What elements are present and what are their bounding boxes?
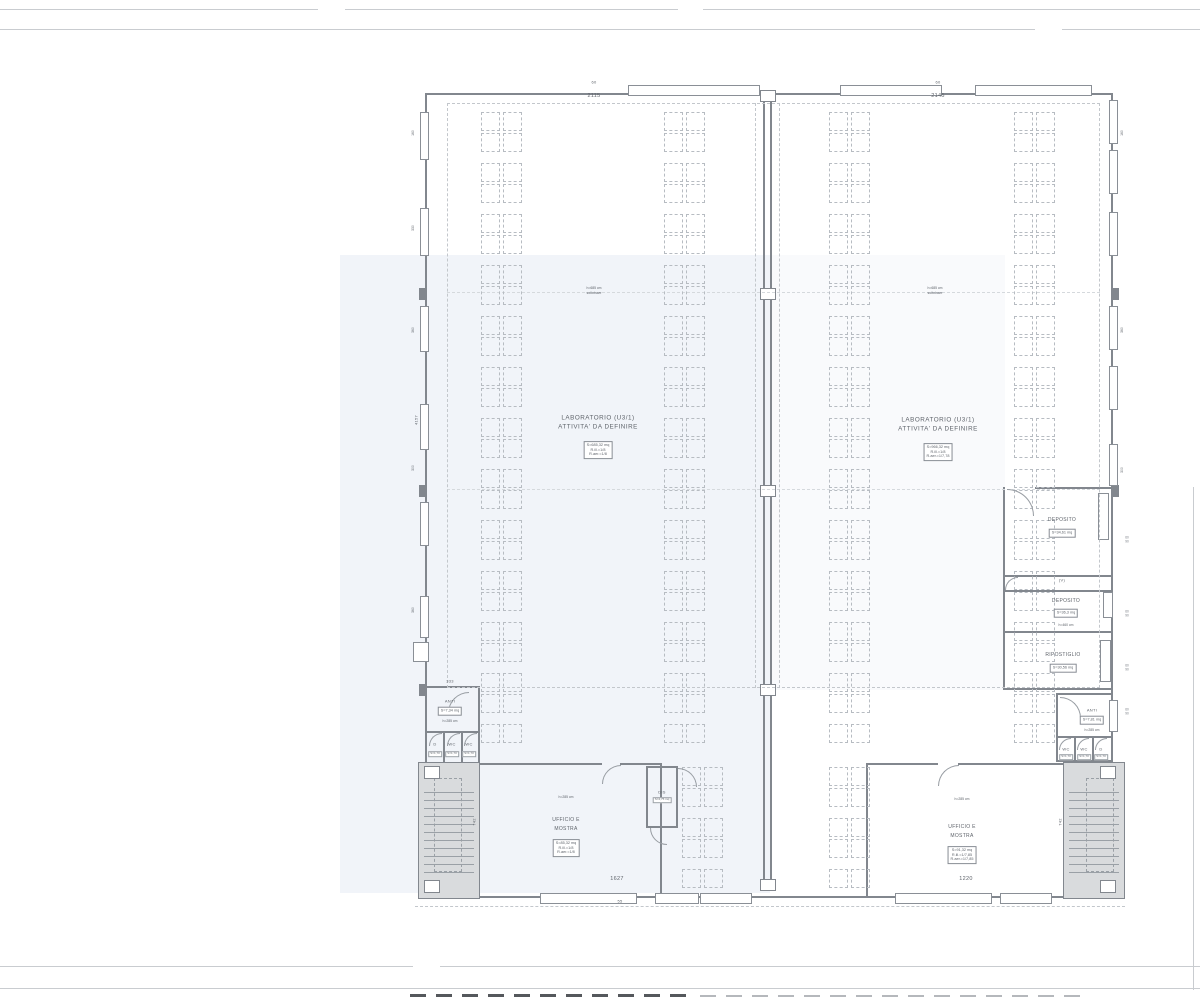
equipment-footprint <box>481 337 500 356</box>
wall <box>419 684 425 696</box>
room-info-ripostiglio: S=30,56 mq <box>1050 664 1077 673</box>
equipment-footprint <box>851 418 870 437</box>
equipment-footprint <box>851 592 870 611</box>
equipment-footprint <box>1036 112 1055 131</box>
cell-area: S=1,70 <box>1077 754 1091 760</box>
equipment-footprint <box>1014 622 1033 641</box>
equipment-footprint <box>1036 694 1055 713</box>
equipment-footprint <box>664 163 683 182</box>
room-info-lab-right: S=966,32 mq R.ill.=1/8 R.aer.=1/7,78 <box>924 443 953 461</box>
equipment-footprint <box>664 571 683 590</box>
equipment-footprint <box>664 133 683 152</box>
window <box>840 85 942 96</box>
equipment-footprint <box>481 469 500 488</box>
equipment-footprint <box>481 571 500 590</box>
equipment-footprint <box>1014 694 1033 713</box>
dim-window-height: 90 <box>1125 614 1129 618</box>
equipment-footprint <box>1036 418 1055 437</box>
door-arc <box>1060 697 1081 718</box>
equipment-footprint <box>682 839 701 858</box>
equipment-footprint <box>503 592 522 611</box>
room-info-deposito-1: S=34,61 mq <box>1049 529 1076 538</box>
equipment-footprint <box>503 724 522 743</box>
dim-anti-left-width: 333 <box>446 679 454 684</box>
window <box>1109 100 1118 144</box>
wall <box>478 688 480 765</box>
dashed-line <box>447 292 1100 293</box>
sheet-border-line <box>345 9 678 10</box>
equipment-footprint <box>503 367 522 386</box>
equipment-footprint <box>851 214 870 233</box>
equipment-footprint <box>1036 214 1055 233</box>
stair-tread <box>1069 872 1119 873</box>
equipment-footprint <box>503 694 522 713</box>
equipment-footprint <box>704 869 723 888</box>
equipment-footprint <box>503 163 522 182</box>
equipment-footprint <box>686 286 705 305</box>
equipment-footprint <box>686 439 705 458</box>
equipment-footprint <box>664 286 683 305</box>
landing-post <box>424 766 440 779</box>
equipment-footprint <box>481 724 500 743</box>
wall <box>461 731 463 762</box>
sheet-edge-mark <box>644 994 660 997</box>
sheet-edge-mark <box>488 994 504 997</box>
room-info-anti-left: S=7,34 mq <box>438 707 462 716</box>
door-arc <box>938 765 959 786</box>
sheet-edge-mark <box>804 995 820 997</box>
equipment-footprint <box>1014 592 1033 611</box>
equipment-footprint <box>503 571 522 590</box>
equipment-footprint <box>664 673 683 692</box>
equipment-footprint <box>503 184 522 203</box>
area-value: S=34,61 mq <box>1052 531 1073 536</box>
wall <box>1113 288 1119 300</box>
area-value: S=36,3 mq <box>1057 611 1075 616</box>
room-title-ufficio-left2: MOSTRA <box>554 826 577 832</box>
window <box>420 502 429 546</box>
equipment-footprint <box>664 214 683 233</box>
equipment-footprint <box>1014 184 1033 203</box>
area-value: S=7,34 mq <box>441 709 459 714</box>
area-value: S=91,32 mq <box>951 848 974 853</box>
wall <box>1058 693 1113 695</box>
equipment-footprint <box>851 133 870 152</box>
equipment-footprint <box>664 439 683 458</box>
window <box>420 306 429 352</box>
wall <box>620 763 662 765</box>
equipment-footprint <box>503 133 522 152</box>
equipment-footprint <box>503 541 522 560</box>
wall <box>443 731 445 762</box>
window <box>895 893 992 904</box>
landing-post <box>1100 880 1116 893</box>
equipment-footprint <box>503 337 522 356</box>
dashed-line <box>447 103 1100 104</box>
height-note-ufficio-left: h=285 cm <box>559 795 574 799</box>
equipment-footprint <box>851 571 870 590</box>
cell-area: S=1,70 <box>428 751 442 757</box>
cell-label-wc: WC <box>1080 747 1087 752</box>
equipment-footprint <box>829 367 848 386</box>
dim-window-mark: 60 90 <box>1125 664 1129 671</box>
equipment-footprint <box>481 673 500 692</box>
room-title-ufficio-right2: MOSTRA <box>950 833 973 839</box>
dashed-line <box>415 906 1125 907</box>
cell-label-wc: WC <box>465 742 472 747</box>
equipment-footprint <box>686 724 705 743</box>
room-title-deposito-2: DEPOSITO <box>1052 598 1080 604</box>
dim-bottom-offset: 55 <box>617 899 622 904</box>
equipment-footprint <box>503 112 522 131</box>
sheet-edge-mark <box>436 994 452 997</box>
equipment-footprint <box>682 869 701 888</box>
area-value: S=85,32 mq <box>556 841 577 846</box>
equipment-footprint <box>851 388 870 407</box>
equipment-footprint <box>664 316 683 335</box>
equipment-footprint <box>503 418 522 437</box>
equipment-footprint <box>1036 439 1055 458</box>
window <box>1109 306 1118 350</box>
equipment-footprint <box>1036 469 1055 488</box>
sheet-edge-mark <box>726 995 742 997</box>
equipment-footprint <box>704 767 723 786</box>
room-title-deposito-1: DEPOSITO <box>1048 517 1076 523</box>
window <box>1109 366 1118 410</box>
equipment-footprint <box>686 592 705 611</box>
equipment-footprint <box>503 214 522 233</box>
equipment-footprint <box>686 694 705 713</box>
equipment-footprint <box>1014 265 1033 284</box>
equipment-footprint <box>481 133 500 152</box>
area-value: S=966,32 mq <box>927 445 950 450</box>
column <box>760 288 776 300</box>
room-title-lab-left: LABORATORIO (U3/1) <box>561 415 634 422</box>
dim-right-edge: 160 <box>1120 130 1124 136</box>
equipment-footprint <box>481 643 500 662</box>
equipment-footprint <box>682 818 701 837</box>
equipment-footprint <box>503 316 522 335</box>
equipment-footprint <box>829 418 848 437</box>
equipment-footprint <box>1014 214 1033 233</box>
equipment-footprint <box>1036 337 1055 356</box>
equipment-footprint <box>829 112 848 131</box>
equipment-footprint <box>829 520 848 539</box>
column <box>760 90 776 102</box>
equipment-footprint <box>829 767 848 786</box>
equipment-footprint <box>481 112 500 131</box>
equipment-footprint <box>503 265 522 284</box>
equipment-footprint <box>829 133 848 152</box>
equipment-footprint <box>829 571 848 590</box>
sheet-border-line <box>0 29 1035 30</box>
window <box>1000 893 1052 904</box>
dashed-line <box>755 103 756 688</box>
equipment-footprint <box>664 367 683 386</box>
sheet-edge-mark <box>618 994 634 997</box>
equipment-footprint <box>1036 388 1055 407</box>
stair-tread <box>424 872 474 873</box>
dim-bottom-right: 1220 <box>959 876 972 882</box>
equipment-footprint <box>481 520 500 539</box>
equipment-footprint <box>1036 571 1055 590</box>
equipment-footprint <box>682 788 701 807</box>
room-title-lab-right2: ATTIVITA' DA DEFINIRE <box>898 426 978 433</box>
landing-post <box>1100 766 1116 779</box>
sheet-edge-mark <box>778 995 794 997</box>
cell-area: S=1,70 <box>1094 754 1108 760</box>
landing-post <box>424 880 440 893</box>
equipment-footprint <box>664 724 683 743</box>
equipment-footprint <box>481 622 500 641</box>
room-title-dis: DIS <box>658 790 666 795</box>
equipment-footprint <box>1036 265 1055 284</box>
equipment-footprint <box>686 622 705 641</box>
room-title-lab-right: LABORATORIO (U3/1) <box>901 417 974 424</box>
window <box>1100 640 1111 682</box>
equipment-footprint <box>1036 367 1055 386</box>
dim-window-mark: 60 90 <box>1125 610 1129 617</box>
equipment-footprint <box>704 818 723 837</box>
room-info-dis: S=4,75 mq <box>653 797 672 803</box>
equipment-footprint <box>851 439 870 458</box>
sheet-edge-mark <box>882 995 898 997</box>
cell-label-d: D <box>433 742 436 747</box>
column <box>760 485 776 497</box>
equipment-footprint <box>1036 490 1055 509</box>
equipment-footprint <box>851 622 870 641</box>
equipment-footprint <box>851 469 870 488</box>
equipment-footprint <box>851 286 870 305</box>
equipment-footprint <box>1014 541 1033 560</box>
dashed-line <box>447 489 1100 490</box>
height-note-lab-left2: sottotrave <box>587 291 602 295</box>
equipment-footprint <box>1036 316 1055 335</box>
equipment-footprint <box>1014 673 1033 692</box>
equipment-footprint <box>664 592 683 611</box>
equipment-footprint <box>686 388 705 407</box>
air-ratio: R.aer.=1/8 <box>556 850 577 855</box>
equipment-footprint <box>829 265 848 284</box>
room-title-ufficio-left: UFFICIO E <box>552 817 579 823</box>
equipment-footprint <box>1014 112 1033 131</box>
equipment-footprint <box>686 673 705 692</box>
window <box>1103 592 1113 618</box>
room-title-anti-left: ANTI <box>445 699 455 704</box>
equipment-footprint <box>664 112 683 131</box>
door-arc <box>1005 577 1018 590</box>
equipment-footprint <box>481 388 500 407</box>
equipment-footprint <box>1036 541 1055 560</box>
equipment-footprint <box>481 184 500 203</box>
equipment-footprint <box>829 869 848 888</box>
sheet-edge-mark <box>514 994 530 997</box>
cell-label-wc: WC <box>448 742 455 747</box>
window <box>1109 700 1118 732</box>
equipment-footprint <box>829 469 848 488</box>
sheet-border-line <box>1062 29 1200 30</box>
equipment-footprint <box>829 184 848 203</box>
equipment-footprint <box>503 439 522 458</box>
equipment-footprint <box>481 367 500 386</box>
equipment-footprint <box>829 388 848 407</box>
equipment-footprint <box>686 367 705 386</box>
window <box>420 596 429 638</box>
wall <box>1074 736 1076 762</box>
equipment-footprint <box>686 265 705 284</box>
equipment-footprint <box>1014 163 1033 182</box>
equipment-footprint <box>686 214 705 233</box>
cell-label-d: D <box>1099 747 1102 752</box>
air-ratio: R.aer.=1/7,85 <box>951 857 974 862</box>
equipment-footprint <box>481 439 500 458</box>
equipment-footprint <box>686 541 705 560</box>
equipment-footprint <box>851 869 870 888</box>
window <box>420 404 429 450</box>
equipment-footprint <box>829 592 848 611</box>
room-title-anti-right: ANTI <box>1087 708 1097 713</box>
sheet-edge-mark <box>540 994 556 997</box>
equipment-footprint <box>664 184 683 203</box>
equipment-footprint <box>664 337 683 356</box>
equipment-footprint <box>851 112 870 131</box>
dim-window-mark: 60 90 <box>1125 708 1129 715</box>
equipment-footprint <box>1014 133 1033 152</box>
equipment-footprint <box>829 337 848 356</box>
equipment-footprint <box>851 788 870 807</box>
equipment-footprint <box>664 520 683 539</box>
dim-right-edge: 360 <box>1120 327 1124 333</box>
wall <box>419 288 425 300</box>
equipment-footprint <box>829 286 848 305</box>
wall <box>646 766 648 828</box>
dim-top-right: 2145 <box>931 93 944 99</box>
equipment-footprint <box>664 622 683 641</box>
equipment-footprint <box>851 235 870 254</box>
equipment-footprint <box>503 520 522 539</box>
equipment-footprint <box>851 673 870 692</box>
area-value: S=685,32 mq <box>587 443 610 448</box>
equipment-footprint <box>686 571 705 590</box>
window <box>1109 212 1118 256</box>
sheet-edge-mark <box>986 995 1002 997</box>
wall <box>958 763 1063 765</box>
equipment-footprint <box>829 235 848 254</box>
equipment-footprint <box>503 622 522 641</box>
equipment-footprint <box>1014 316 1033 335</box>
sheet-border-line <box>0 9 318 10</box>
room-info-ufficio-right: S=91,32 mq R.ill.=1/7,85 R.aer.=1/7,85 <box>948 846 977 864</box>
sheet-edge-mark <box>1064 995 1080 997</box>
sheet-edge-mark <box>1012 995 1028 997</box>
room-title-ufficio-right: UFFICIO E <box>948 824 975 830</box>
equipment-footprint <box>1014 724 1033 743</box>
window <box>420 208 429 256</box>
equipment-footprint <box>851 490 870 509</box>
equipment-footprint <box>686 643 705 662</box>
equipment-footprint <box>851 767 870 786</box>
equipment-footprint <box>503 490 522 509</box>
equipment-footprint <box>829 316 848 335</box>
sheet-edge-mark <box>960 995 976 997</box>
equipment-footprint <box>686 112 705 131</box>
equipment-footprint <box>851 694 870 713</box>
dim-bottom-left: 1627 <box>610 876 623 882</box>
window <box>420 112 429 160</box>
equipment-footprint <box>664 388 683 407</box>
equipment-footprint <box>829 163 848 182</box>
room-info-deposito-2: S=36,3 mq <box>1054 609 1078 618</box>
equipment-footprint <box>851 367 870 386</box>
equipment-footprint <box>664 643 683 662</box>
equipment-footprint <box>851 839 870 858</box>
equipment-footprint <box>481 694 500 713</box>
equipment-footprint <box>481 286 500 305</box>
equipment-footprint <box>1036 133 1055 152</box>
cell-area: S=1,70 <box>1059 754 1073 760</box>
window <box>975 85 1092 96</box>
sheet-edge-mark <box>566 994 582 997</box>
equipment-footprint <box>851 163 870 182</box>
sheet-edge-mark <box>700 995 716 997</box>
equipment-footprint <box>503 469 522 488</box>
equipment-footprint <box>686 235 705 254</box>
sheet-edge-mark <box>856 995 872 997</box>
equipment-footprint <box>1014 367 1033 386</box>
dashed-line <box>447 687 1100 688</box>
stair-path <box>434 778 462 872</box>
stair-path <box>1086 778 1114 872</box>
column <box>760 879 776 891</box>
equipment-footprint <box>664 418 683 437</box>
sheet-border-line <box>440 966 1200 967</box>
sheet-edge-mark <box>752 995 768 997</box>
equipment-footprint <box>664 469 683 488</box>
equipment-footprint <box>1014 439 1033 458</box>
room-info-ufficio-left: S=85,32 mq R.ill.=1/8 R.aer.=1/8 <box>553 839 580 857</box>
equipment-footprint <box>704 839 723 858</box>
wall <box>480 763 602 765</box>
equipment-footprint <box>686 337 705 356</box>
equipment-footprint <box>829 818 848 837</box>
equipment-footprint <box>851 643 870 662</box>
equipment-footprint <box>851 724 870 743</box>
equipment-footprint <box>829 694 848 713</box>
equipment-footprint <box>829 490 848 509</box>
wall <box>425 688 427 762</box>
dim-left-edge: 360 <box>411 607 415 613</box>
equipment-footprint <box>851 541 870 560</box>
dim-stair-left: 742 <box>472 818 477 826</box>
sheet-border-line <box>0 988 1200 989</box>
equipment-footprint <box>829 673 848 692</box>
equipment-footprint <box>1014 469 1033 488</box>
dim-stair-right: 742 <box>1058 818 1063 826</box>
dim-left-edge: 300 <box>411 465 415 471</box>
sheet-edge-mark <box>830 995 846 997</box>
dim-window-height: 90 <box>1125 540 1129 544</box>
cell-label-wc: WC <box>1062 747 1069 752</box>
sheet-edge-mark <box>1038 995 1054 997</box>
dim-left-edge: 160 <box>411 130 415 136</box>
equipment-footprint <box>503 388 522 407</box>
dim-left-edge: 330 <box>411 225 415 231</box>
equipment-footprint <box>1014 388 1033 407</box>
dim-window-top-right: 60 <box>935 80 940 85</box>
equipment-footprint <box>1014 418 1033 437</box>
sheet-edge-mark <box>592 994 608 997</box>
sheet-border-line <box>0 966 413 967</box>
